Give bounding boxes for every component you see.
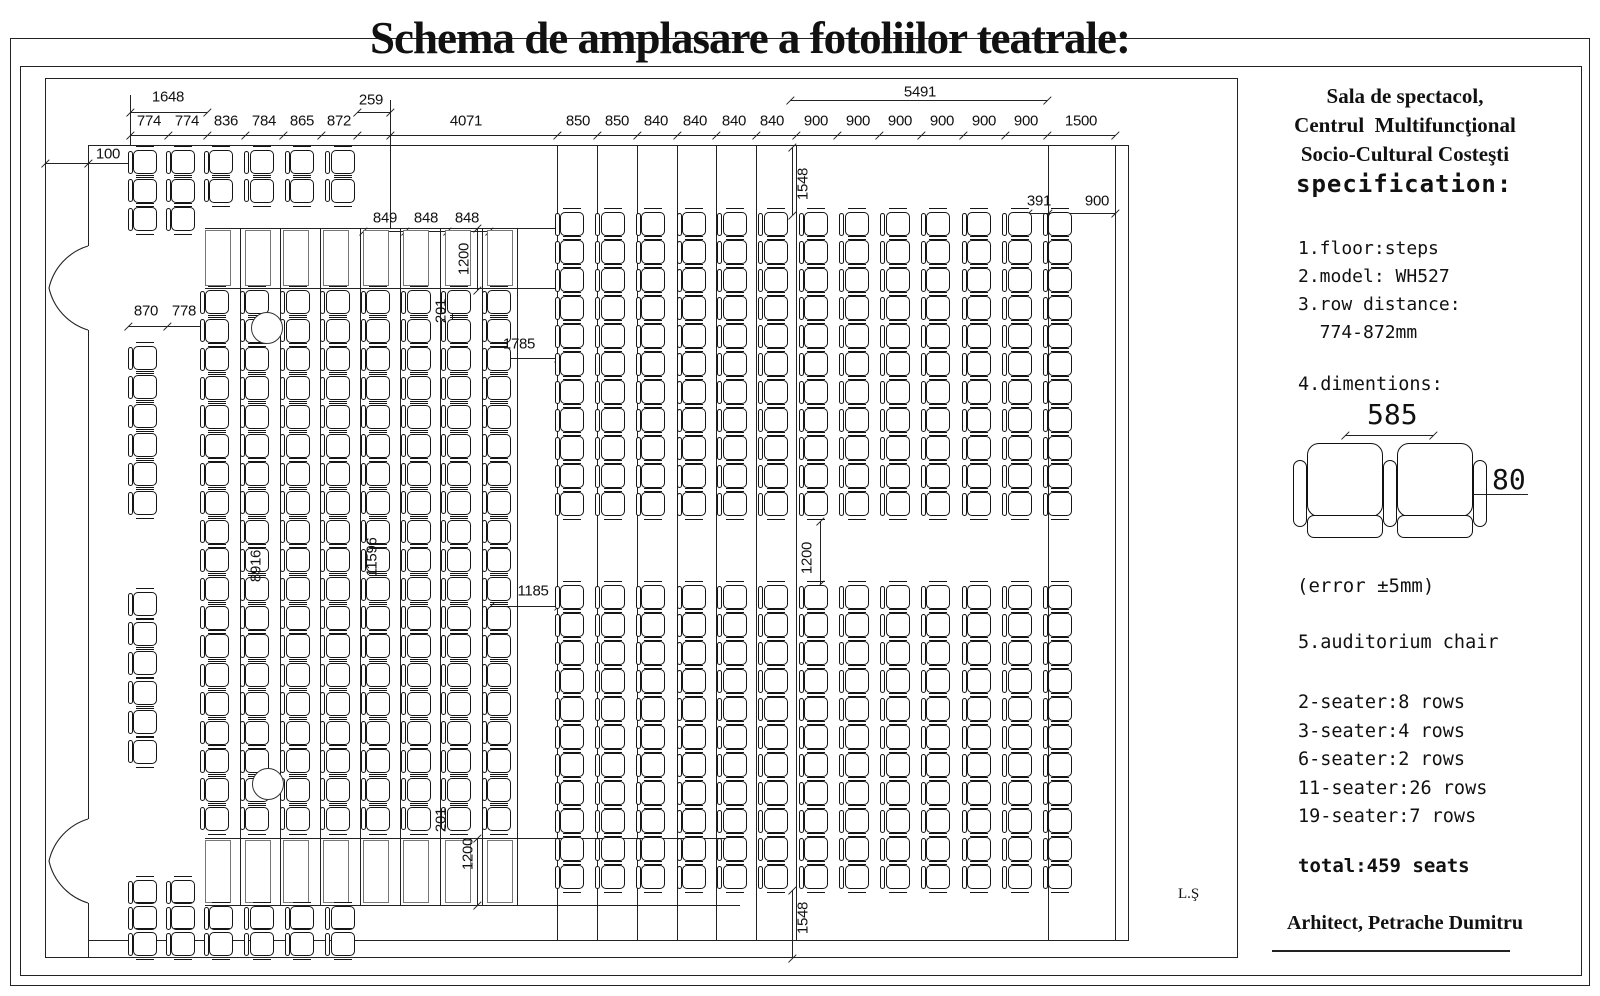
row-count-item: 2-seater:8 rows xyxy=(1298,692,1465,713)
chair-back-left xyxy=(1307,443,1383,517)
hall-name-line3: Socio-Cultural Costeşti xyxy=(1250,142,1560,167)
chair-seat-left xyxy=(1307,515,1383,538)
hall-name-line2: Centrul Multifuncţional xyxy=(1250,113,1560,138)
seat-width-dimline xyxy=(1345,435,1433,436)
chair-armrest-middle xyxy=(1383,460,1397,527)
seat-width-label: 585 xyxy=(1367,398,1418,431)
row-count-item: 19-seater:7 rows xyxy=(1298,806,1476,827)
chair-seat-right xyxy=(1397,515,1473,538)
architect-name: Arhitect, Petrache Dumitru xyxy=(1250,912,1560,935)
error-note: (error ±5mm) xyxy=(1297,575,1434,597)
spec-item: 2.model: WH527 xyxy=(1298,266,1450,287)
seat-depth-label: 80 xyxy=(1492,463,1526,496)
door-leaf-arc xyxy=(49,819,88,903)
spec-item: 3.row distance: xyxy=(1298,294,1461,315)
row-count-item: 6-seater:2 rows xyxy=(1298,749,1465,770)
seat-depth-dimline xyxy=(1473,494,1528,495)
spec-item: 774-872mm xyxy=(1298,322,1417,343)
chair-back-right xyxy=(1397,443,1473,517)
dimensions-heading: 4.dimentions: xyxy=(1298,374,1443,395)
spec-heading: specification: xyxy=(1296,170,1512,198)
chair-armrest-left xyxy=(1293,460,1307,527)
door-leaf-arc xyxy=(49,246,88,330)
architect-rule xyxy=(1272,950,1510,952)
total-seats: total:459 seats xyxy=(1298,855,1470,877)
spec-item: 1.floor:steps xyxy=(1298,238,1439,259)
hall-name-line1: Sala de spectacol, xyxy=(1250,84,1560,109)
stamp-text: L.Ş xyxy=(1178,886,1199,903)
chair-heading: 5.auditorium chair xyxy=(1298,632,1498,653)
row-count-item: 3-seater:4 rows xyxy=(1298,721,1465,742)
row-count-item: 11-seater:26 rows xyxy=(1298,778,1487,799)
